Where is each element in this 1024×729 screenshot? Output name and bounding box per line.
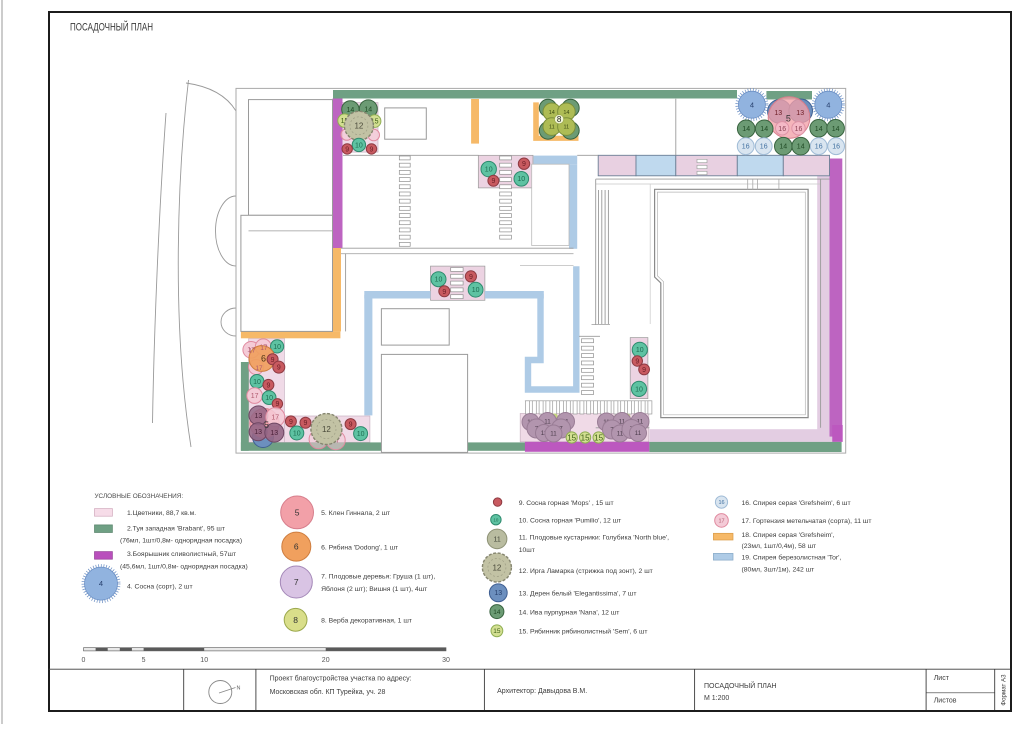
svg-text:13: 13 <box>494 590 502 597</box>
svg-text:17: 17 <box>261 345 268 352</box>
svg-text:1.Цветники, 88,7 кв.м.: 1.Цветники, 88,7 кв.м. <box>127 510 196 517</box>
svg-text:16: 16 <box>795 126 803 133</box>
svg-text:10: 10 <box>265 395 273 402</box>
svg-text:N: N <box>237 686 241 692</box>
svg-text:11: 11 <box>549 125 555 131</box>
svg-text:14: 14 <box>797 144 805 151</box>
svg-text:16: 16 <box>742 144 750 151</box>
svg-text:16: 16 <box>760 144 768 151</box>
svg-text:10: 10 <box>435 277 443 284</box>
svg-text:16: 16 <box>778 126 786 133</box>
svg-text:9: 9 <box>491 178 495 185</box>
svg-text:М 1:200: М 1:200 <box>704 695 729 702</box>
svg-text:Архитектор: Давыдова В.М.: Архитектор: Давыдова В.М. <box>497 688 587 695</box>
svg-text:10: 10 <box>355 142 363 149</box>
svg-text:19. Спирея березолистная 'Tor': 19. Спирея березолистная 'Tor', <box>742 554 842 562</box>
svg-text:13: 13 <box>254 429 262 436</box>
svg-text:14: 14 <box>549 110 555 116</box>
svg-text:14: 14 <box>760 126 768 133</box>
svg-text:9: 9 <box>522 161 526 168</box>
svg-text:Московская обл. КП Турейка, уч: Московская обл. КП Турейка, уч. 28 <box>270 688 386 696</box>
svg-text:11: 11 <box>493 536 500 543</box>
svg-text:10: 10 <box>636 347 644 354</box>
svg-text:14: 14 <box>742 126 750 133</box>
svg-text:15: 15 <box>493 628 501 635</box>
svg-text:17: 17 <box>249 348 256 355</box>
svg-text:12: 12 <box>354 122 363 131</box>
svg-text:17: 17 <box>718 518 724 524</box>
svg-text:15: 15 <box>594 433 603 442</box>
svg-text:11: 11 <box>550 431 557 438</box>
svg-text:9: 9 <box>345 146 349 153</box>
svg-text:6. Рябина 'Dodong', 1 шт: 6. Рябина 'Dodong', 1 шт <box>321 544 398 552</box>
svg-text:5: 5 <box>264 420 269 430</box>
svg-text:4: 4 <box>750 100 754 109</box>
svg-text:Листов: Листов <box>934 697 957 704</box>
svg-text:9: 9 <box>370 146 374 153</box>
svg-text:2.Туя западная 'Brabant', 95 ш: 2.Туя западная 'Brabant', 95 шт <box>127 526 225 533</box>
svg-text:10: 10 <box>200 657 208 664</box>
svg-text:10шт: 10шт <box>519 547 535 554</box>
svg-text:7. Плодовые деревья: Груша (1: 7. Плодовые деревья: Груша (1 шт), <box>321 574 435 581</box>
svg-text:9: 9 <box>266 382 270 389</box>
svg-text:9: 9 <box>349 422 353 429</box>
svg-text:13. Дерен белый 'Elegantissima: 13. Дерен белый 'Elegantissima', 7 шт <box>519 590 637 598</box>
svg-text:5: 5 <box>786 114 791 124</box>
svg-text:(45,6мл, 1шт/0,8м- однорядная: (45,6мл, 1шт/0,8м- однорядная посадка) <box>120 564 248 571</box>
svg-text:14. Ива пурпурная 'Nana', 12 ш: 14. Ива пурпурная 'Nana', 12 шт <box>519 610 620 617</box>
svg-text:10: 10 <box>517 176 525 183</box>
svg-text:14: 14 <box>493 609 501 616</box>
svg-text:12: 12 <box>492 563 501 572</box>
svg-text:4: 4 <box>99 579 103 588</box>
svg-text:11: 11 <box>564 125 570 131</box>
svg-text:(76мл, 1шт/0,8м- однорядная по: (76мл, 1шт/0,8м- однорядная посадка) <box>120 538 242 545</box>
svg-text:8. Верба декоративная, 1 шт: 8. Верба декоративная, 1 шт <box>321 617 412 625</box>
svg-text:13: 13 <box>774 110 782 117</box>
svg-text:10: 10 <box>273 344 281 351</box>
svg-text:17: 17 <box>255 365 263 372</box>
svg-text:14: 14 <box>563 110 569 116</box>
svg-text:17: 17 <box>251 393 259 400</box>
svg-text:16: 16 <box>815 144 823 151</box>
svg-text:9: 9 <box>642 367 646 374</box>
svg-text:14: 14 <box>832 126 840 133</box>
svg-text:5: 5 <box>295 507 300 517</box>
svg-text:16: 16 <box>718 500 724 506</box>
svg-text:14: 14 <box>779 144 787 151</box>
svg-text:ПОСАДОЧНЫЙ ПЛАН: ПОСАДОЧНЫЙ ПЛАН <box>70 21 153 34</box>
svg-text:15: 15 <box>567 433 576 442</box>
svg-text:10: 10 <box>357 431 365 438</box>
svg-text:12: 12 <box>322 425 331 434</box>
svg-text:10: 10 <box>253 379 261 386</box>
svg-text:15. Рябинник рябинолистный 'Se: 15. Рябинник рябинолистный 'Sem', 6 шт <box>519 628 648 636</box>
svg-text:3.Боярышник сливолистный, 57шт: 3.Боярышник сливолистный, 57шт <box>127 550 236 558</box>
svg-text:17. Гортензия метельчатая (сор: 17. Гортензия метельчатая (сорта), 11 шт <box>742 518 872 525</box>
svg-text:30: 30 <box>442 657 450 664</box>
svg-text:10: 10 <box>293 430 301 437</box>
svg-text:20: 20 <box>322 657 330 664</box>
svg-text:11: 11 <box>635 430 642 437</box>
svg-text:16. Спирея серая 'Grefsheim',: 16. Спирея серая 'Grefsheim', 6 шт <box>742 500 851 507</box>
svg-text:Лист: Лист <box>934 675 950 682</box>
svg-text:9: 9 <box>277 365 281 372</box>
svg-text:5: 5 <box>142 657 146 664</box>
svg-text:6: 6 <box>294 542 299 552</box>
svg-text:9: 9 <box>289 419 293 426</box>
svg-text:6: 6 <box>261 354 266 364</box>
svg-text:4: 4 <box>826 100 830 109</box>
svg-text:8: 8 <box>293 615 298 625</box>
svg-text:15: 15 <box>581 433 590 442</box>
svg-text:10: 10 <box>485 167 493 174</box>
svg-text:9: 9 <box>442 289 446 296</box>
svg-text:9: 9 <box>469 274 473 281</box>
svg-text:Проект благоустройства участка: Проект благоустройства участка по адресу… <box>270 675 412 683</box>
svg-text:Яблоня (2 шт); Вишня (1 шт), 4: Яблоня (2 шт); Вишня (1 шт), 4шт <box>321 585 427 593</box>
svg-text:14: 14 <box>815 126 823 133</box>
svg-text:(80мл, 3шт/1м), 242 шт: (80мл, 3шт/1м), 242 шт <box>742 567 815 574</box>
svg-text:4. Сосна (сорт), 2 шт: 4. Сосна (сорт), 2 шт <box>127 584 193 591</box>
svg-text:УСЛОВНЫЕ ОБОЗНАЧЕНИЯ:: УСЛОВНЫЕ ОБОЗНАЧЕНИЯ: <box>95 493 184 500</box>
svg-text:ПОСАДОЧНЫЙ ПЛАН: ПОСАДОЧНЫЙ ПЛАН <box>704 681 777 690</box>
svg-text:9: 9 <box>635 358 639 365</box>
svg-text:10: 10 <box>472 287 480 294</box>
svg-text:16: 16 <box>832 144 840 151</box>
svg-text:Формат А3: Формат А3 <box>1001 674 1008 706</box>
svg-text:17: 17 <box>271 415 279 422</box>
svg-text:10: 10 <box>635 386 643 393</box>
svg-text:11. Плодовые кустарники: Голуб: 11. Плодовые кустарники: Голубика 'North… <box>519 534 669 542</box>
svg-text:7: 7 <box>294 577 299 587</box>
svg-text:(23мл, 1шт/0,4м), 58 шт: (23мл, 1шт/0,4м), 58 шт <box>742 543 817 550</box>
svg-text:13: 13 <box>796 110 804 117</box>
svg-text:10. Сосна горная 'Pumilio', 12: 10. Сосна горная 'Pumilio', 12 шт <box>519 518 622 525</box>
svg-text:13: 13 <box>270 430 278 437</box>
svg-text:8: 8 <box>557 115 562 124</box>
svg-text:13: 13 <box>255 413 263 420</box>
svg-text:9: 9 <box>304 420 308 427</box>
svg-text:10: 10 <box>493 517 499 522</box>
svg-text:5. Клен Гиннала, 2 шт: 5. Клен Гиннала, 2 шт <box>321 510 390 517</box>
svg-text:18. Спирея серая 'Grefsheim',: 18. Спирея серая 'Grefsheim', <box>742 532 835 539</box>
svg-text:12. Ирга Ламарка (стрижка под: 12. Ирга Ламарка (стрижка под зонт), 2 ш… <box>519 568 653 575</box>
svg-text:9. Сосна горная 'Mops' , 15 шт: 9. Сосна горная 'Mops' , 15 шт <box>519 500 614 507</box>
svg-text:0: 0 <box>82 657 86 664</box>
